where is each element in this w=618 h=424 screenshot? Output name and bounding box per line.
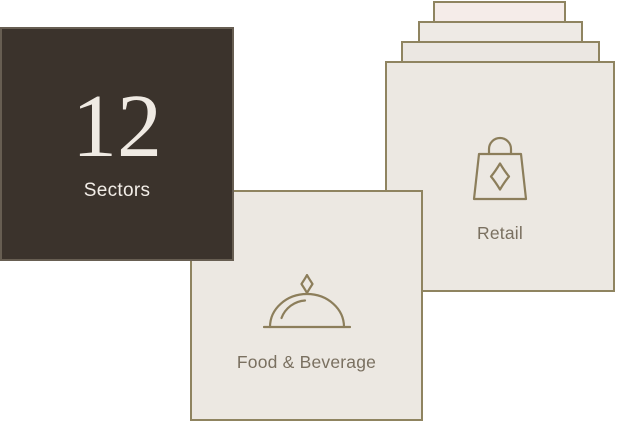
sectors-overview: Retail Food & Beverage 12 Sectors <box>0 0 618 424</box>
sectors-count-label: Sectors <box>84 180 151 202</box>
shopping-bag-icon <box>472 135 528 201</box>
sectors-count-card: 12 Sectors <box>0 27 234 261</box>
sector-card-label: Retail <box>477 223 523 244</box>
cloche-icon <box>263 274 351 330</box>
food-beverage-icon-box <box>263 264 351 330</box>
sectors-count-value: 12 <box>72 86 162 169</box>
sector-card-label: Food & Beverage <box>237 352 376 373</box>
retail-icon-box <box>472 135 528 201</box>
